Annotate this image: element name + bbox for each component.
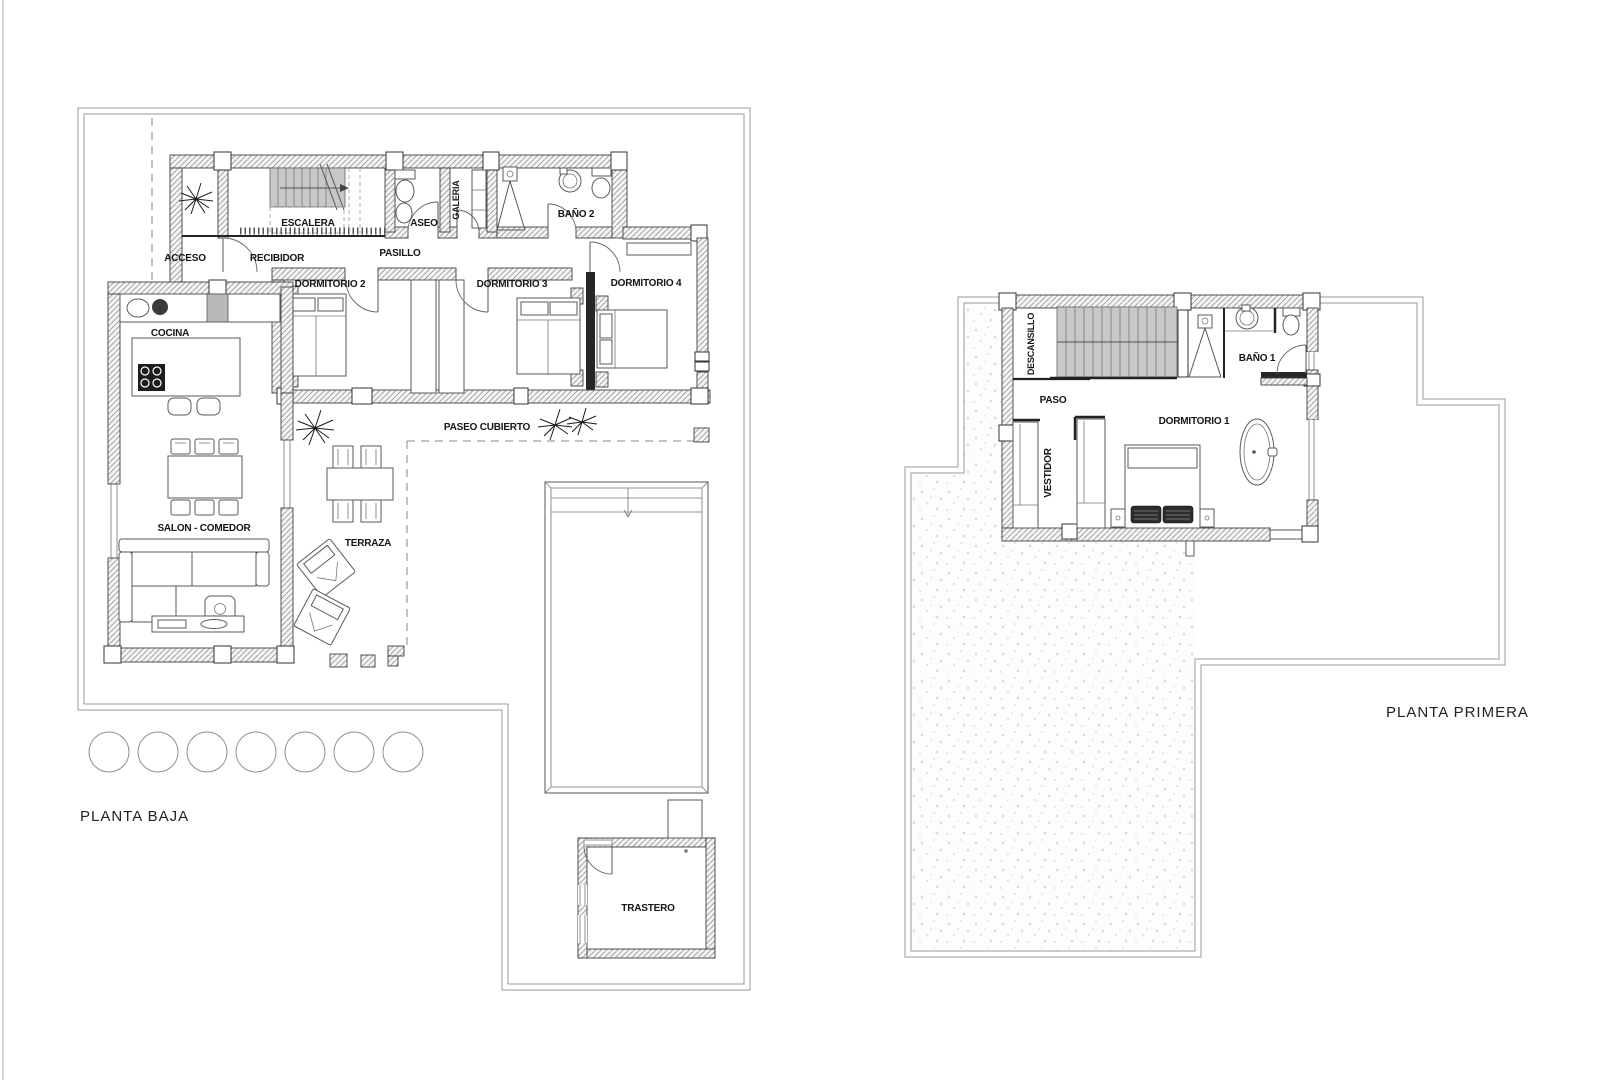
room-label-trastero: TRASTERO bbox=[621, 903, 675, 914]
sofa-group bbox=[119, 539, 269, 632]
room-label-pasillo: PASILLO bbox=[379, 248, 421, 259]
dormitorio2-bed bbox=[286, 294, 346, 376]
kitchen-furniture bbox=[120, 294, 280, 415]
dormitorio1-bed bbox=[1111, 445, 1214, 528]
ground-floor-plan: ACCESO RECIBIDOR ESCALERA ASEO GALERIA B… bbox=[78, 108, 750, 990]
plant-icon bbox=[567, 408, 597, 435]
floorplan-page: ACCESO RECIBIDOR ESCALERA ASEO GALERIA B… bbox=[0, 0, 1620, 1080]
room-label-escalera: ESCALERA bbox=[281, 218, 334, 229]
room-label-descansillo: DESCANSILLO bbox=[1026, 313, 1036, 376]
vestidor-wardrobes bbox=[1013, 417, 1105, 528]
room-label-salon-comedor: SALON - COMEDOR bbox=[157, 523, 251, 534]
room-label-cocina: COCINA bbox=[151, 328, 189, 339]
room-label-terraza: TERRAZA bbox=[345, 538, 391, 549]
plant-icon bbox=[538, 409, 572, 440]
room-label-dormitorio1: DORMITORIO 1 bbox=[1159, 416, 1230, 427]
room-label-bano1: BAÑO 1 bbox=[1239, 351, 1276, 364]
paseo-cubierto-edge bbox=[407, 428, 709, 649]
room-label-paseo-cubierto: PASEO CUBIERTO bbox=[444, 422, 531, 433]
room-label-aseo: ASEO bbox=[410, 218, 438, 229]
trastero-building bbox=[578, 800, 715, 958]
pool bbox=[545, 482, 708, 793]
room-label-recibidor: RECIBIDOR bbox=[250, 253, 305, 264]
ground-floor-title: PLANTA BAJA bbox=[80, 808, 189, 825]
bathtub bbox=[1240, 419, 1277, 485]
dormitorio4-bed bbox=[597, 243, 691, 368]
room-label-bano2: BAÑO 2 bbox=[558, 207, 595, 220]
room-label-vestidor: VESTIDOR bbox=[1043, 447, 1054, 497]
room-label-dormitorio2: DORMITORIO 2 bbox=[295, 279, 366, 290]
first-floor-plan: DESCANSILLO PASO BAÑO 1 DORMITORIO 1 VES… bbox=[905, 293, 1529, 957]
room-label-galeria: GALERIA bbox=[451, 180, 461, 220]
plant-icon bbox=[296, 410, 334, 445]
room-label-acceso: ACCESO bbox=[164, 253, 206, 264]
galeria-cabinet bbox=[457, 170, 486, 232]
first-floor-title: PLANTA PRIMERA bbox=[1386, 704, 1529, 721]
terraza-furniture bbox=[294, 446, 404, 667]
tree-circles bbox=[89, 732, 423, 772]
bano1-fixtures bbox=[1189, 305, 1307, 385]
room-label-dormitorio4: DORMITORIO 4 bbox=[611, 278, 682, 289]
room-label-paso: PASO bbox=[1040, 395, 1067, 406]
first-floor-stairs bbox=[1050, 307, 1188, 378]
room-label-dormitorio3: DORMITORIO 3 bbox=[477, 279, 548, 290]
plant-icon bbox=[179, 183, 213, 214]
bano2-fixtures bbox=[497, 167, 611, 232]
lounge-chair-2 bbox=[294, 589, 351, 646]
dining-set bbox=[168, 439, 242, 515]
dormitorio3-bed bbox=[517, 298, 580, 374]
floorplan-drawing: ACCESO RECIBIDOR ESCALERA ASEO GALERIA B… bbox=[0, 0, 1620, 1080]
